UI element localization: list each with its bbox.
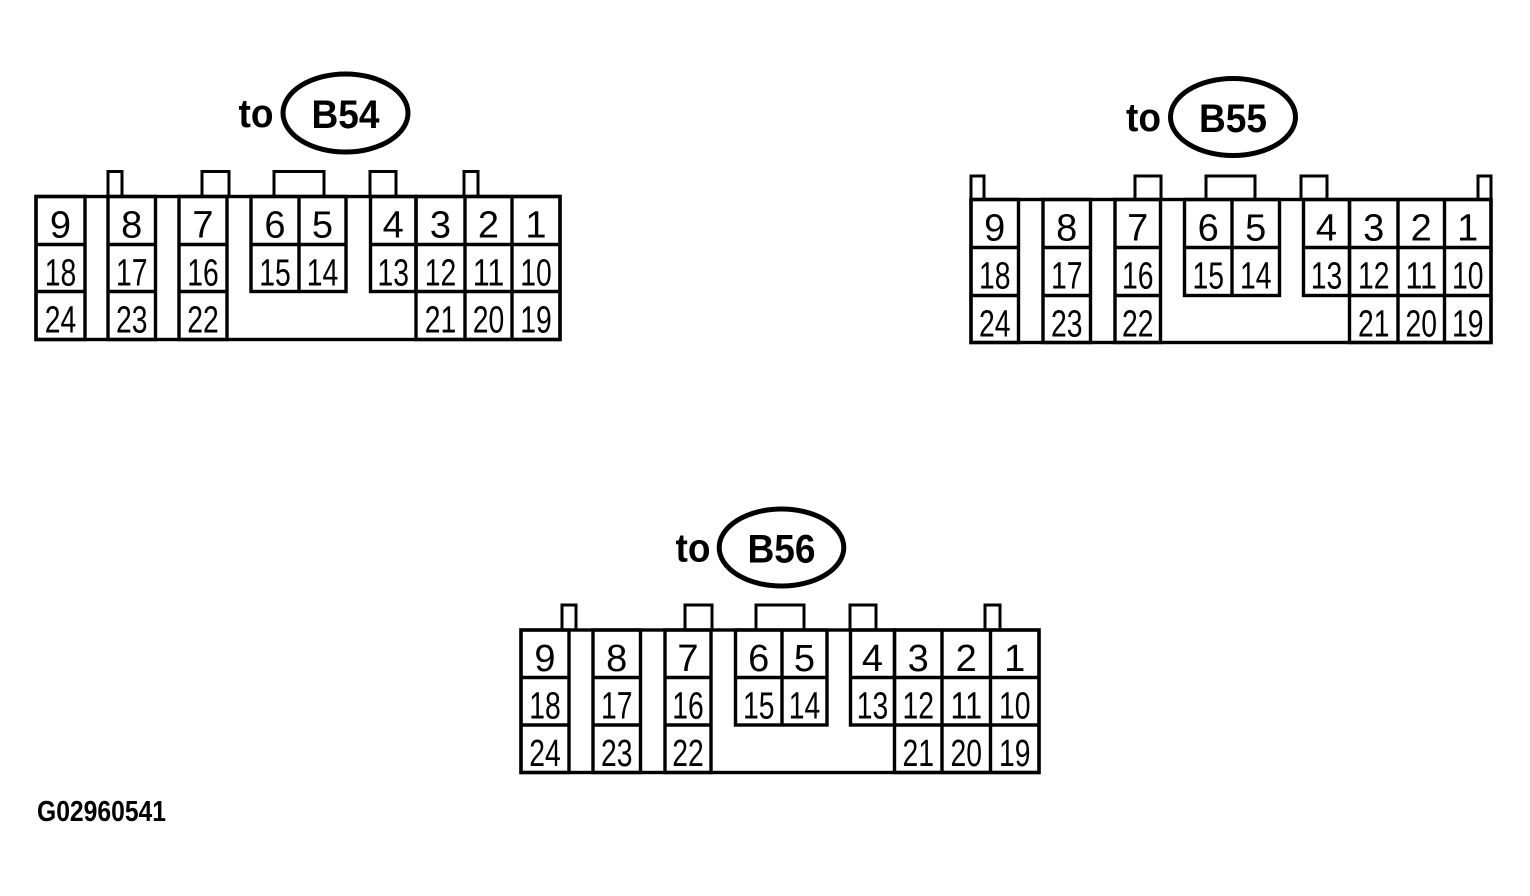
svg-text:16: 16 — [672, 686, 704, 728]
svg-text:20: 20 — [1406, 304, 1438, 346]
svg-text:8: 8 — [121, 205, 142, 247]
svg-text:12: 12 — [1358, 256, 1390, 298]
svg-text:15: 15 — [1193, 256, 1225, 298]
svg-text:21: 21 — [1358, 304, 1390, 346]
svg-text:4: 4 — [1316, 208, 1337, 250]
svg-text:2: 2 — [956, 638, 977, 680]
svg-text:20: 20 — [473, 300, 505, 342]
svg-text:12: 12 — [903, 686, 935, 728]
svg-text:7: 7 — [1127, 208, 1148, 250]
svg-text:13: 13 — [1311, 256, 1343, 298]
svg-text:5: 5 — [1245, 208, 1266, 250]
svg-text:1: 1 — [1004, 638, 1025, 680]
svg-text:16: 16 — [187, 253, 219, 295]
svg-text:22: 22 — [672, 733, 704, 775]
svg-text:7: 7 — [677, 638, 698, 680]
svg-text:20: 20 — [951, 733, 983, 775]
svg-text:10: 10 — [999, 686, 1031, 728]
svg-text:14: 14 — [789, 686, 821, 728]
svg-text:5: 5 — [312, 205, 333, 247]
svg-text:10: 10 — [1452, 256, 1484, 298]
svg-text:17: 17 — [601, 686, 633, 728]
svg-text:2: 2 — [478, 205, 499, 247]
svg-text:9: 9 — [984, 208, 1005, 250]
svg-text:16: 16 — [1122, 256, 1154, 298]
svg-text:to: to — [676, 527, 711, 571]
svg-text:9: 9 — [534, 638, 555, 680]
svg-text:9: 9 — [50, 205, 71, 247]
svg-text:10: 10 — [520, 253, 552, 295]
svg-text:B54: B54 — [312, 93, 381, 137]
svg-text:8: 8 — [606, 638, 627, 680]
svg-text:3: 3 — [1363, 208, 1384, 250]
svg-text:to: to — [1126, 96, 1161, 140]
svg-text:4: 4 — [862, 638, 883, 680]
svg-text:14: 14 — [307, 253, 339, 295]
svg-text:17: 17 — [116, 253, 148, 295]
svg-text:19: 19 — [999, 733, 1031, 775]
svg-text:to: to — [239, 92, 274, 136]
svg-text:1: 1 — [525, 205, 546, 247]
svg-text:22: 22 — [187, 300, 219, 342]
svg-text:4: 4 — [383, 205, 404, 247]
svg-text:1: 1 — [1457, 208, 1478, 250]
svg-text:21: 21 — [903, 733, 935, 775]
svg-text:3: 3 — [908, 638, 929, 680]
svg-text:5: 5 — [794, 638, 815, 680]
svg-text:13: 13 — [378, 253, 410, 295]
svg-text:2: 2 — [1411, 208, 1432, 250]
svg-text:3: 3 — [430, 205, 451, 247]
svg-text:18: 18 — [979, 256, 1011, 298]
svg-text:6: 6 — [1198, 208, 1219, 250]
svg-text:24: 24 — [529, 733, 561, 775]
svg-text:11: 11 — [473, 253, 505, 295]
svg-text:13: 13 — [857, 686, 889, 728]
svg-text:12: 12 — [425, 253, 457, 295]
svg-text:18: 18 — [529, 686, 561, 728]
svg-text:7: 7 — [192, 205, 213, 247]
svg-text:18: 18 — [45, 253, 77, 295]
svg-text:23: 23 — [1051, 304, 1083, 346]
svg-text:19: 19 — [1452, 304, 1484, 346]
svg-text:G02960541: G02960541 — [37, 796, 166, 828]
svg-text:17: 17 — [1051, 256, 1083, 298]
svg-text:6: 6 — [264, 205, 285, 247]
svg-text:B56: B56 — [748, 528, 816, 572]
svg-text:24: 24 — [45, 300, 77, 342]
svg-text:B55: B55 — [1199, 97, 1267, 141]
svg-text:11: 11 — [1406, 256, 1438, 298]
svg-text:11: 11 — [951, 686, 983, 728]
svg-text:14: 14 — [1240, 256, 1272, 298]
svg-text:23: 23 — [116, 300, 148, 342]
svg-text:23: 23 — [601, 733, 633, 775]
svg-text:15: 15 — [743, 686, 775, 728]
svg-text:22: 22 — [1122, 304, 1154, 346]
svg-text:21: 21 — [425, 300, 457, 342]
svg-text:19: 19 — [520, 300, 552, 342]
svg-text:24: 24 — [979, 304, 1011, 346]
svg-text:15: 15 — [259, 253, 291, 295]
svg-text:8: 8 — [1056, 208, 1077, 250]
svg-text:6: 6 — [748, 638, 769, 680]
